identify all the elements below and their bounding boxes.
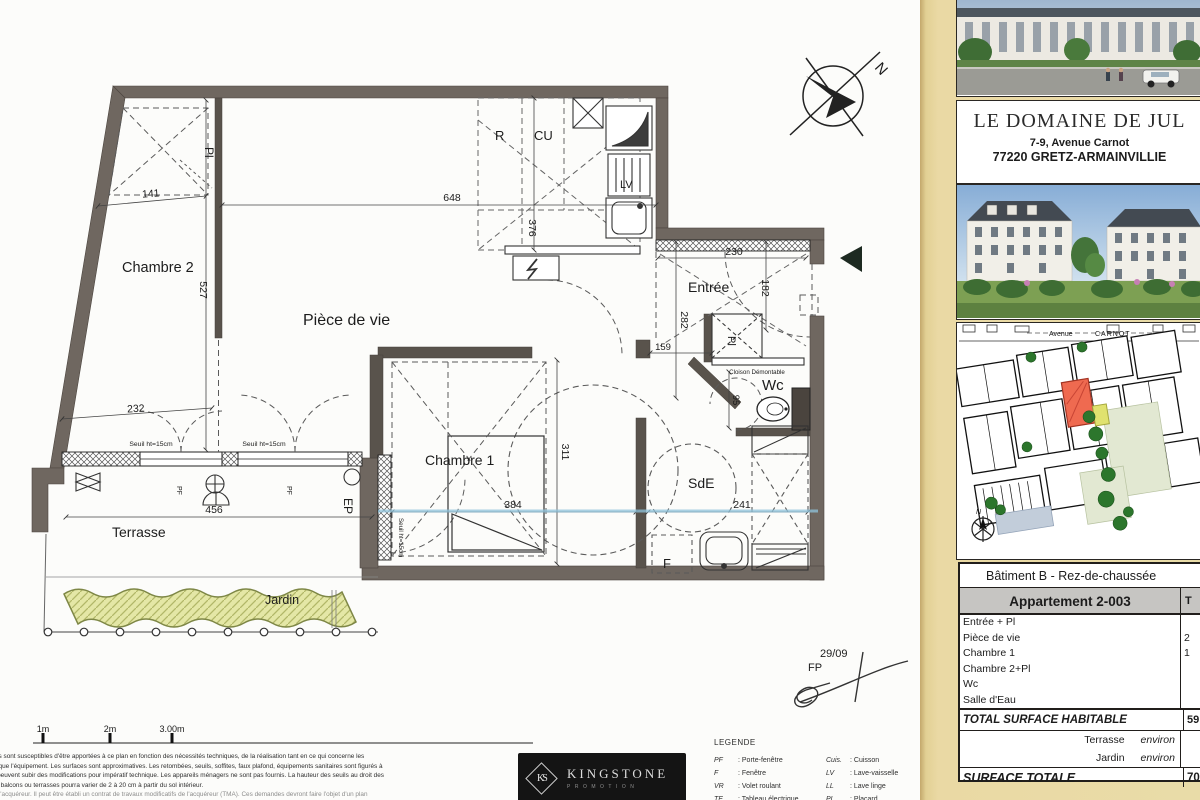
dim-282: 282	[678, 311, 690, 329]
project-title-block: LE DOMAINE DE JUL 7-9, Avenue Carnot 772…	[956, 100, 1200, 184]
project-address-line1: 7-9, Avenue Carnot	[957, 137, 1200, 149]
legend-abbr: VR	[714, 783, 738, 790]
legend-abbr: LV	[826, 770, 850, 777]
toilet	[757, 388, 810, 430]
room-label-piece-de-vie: Pièce de vie	[303, 312, 390, 329]
table-row-value: 2	[1181, 631, 1200, 647]
closet-label-pl-top: Pl	[202, 147, 216, 158]
table-building-header: Bâtiment B - Rez-de-chaussée	[960, 564, 1200, 588]
street-label-avenue: Avenue	[1049, 331, 1073, 338]
legend-item: F: Fenêtre	[714, 767, 826, 780]
table-jardin-row: Jardin environ	[960, 749, 1200, 767]
table-row-label: Entrée + Pl	[960, 615, 1180, 631]
garden-hedge	[64, 589, 356, 627]
floorplan-document-page: Chambre 2 Pièce de vie Chambre 1 Entrée …	[0, 0, 1200, 800]
chambre2-closet	[109, 108, 212, 195]
disclaimer-text: ions sont susceptibles d'être apportées …	[0, 752, 490, 800]
disclaimer-line: es que l'équipement. Les surfaces sont a…	[0, 762, 490, 772]
legend-item: VR: Volet roulant	[714, 780, 826, 793]
table-row-label: Chambre 2+Pl	[960, 662, 1180, 678]
closet-label-pl-entree: Pl	[725, 336, 737, 346]
ep-label: EP	[341, 498, 355, 514]
table-row-label: Chambre 1	[960, 646, 1180, 662]
dim-311: 311	[559, 444, 571, 461]
valve-symbol	[76, 473, 100, 491]
table-row-value	[1181, 677, 1200, 693]
room-label-chambre1: Chambre 1	[425, 452, 494, 468]
plan-initials: FP	[808, 662, 822, 674]
ep-pipe	[344, 469, 360, 485]
legend-label: : Volet roulant	[738, 783, 781, 790]
pf-label-2: PF	[285, 486, 292, 495]
room-label-wc: Wc	[762, 377, 784, 394]
logo-diamond-icon: KS	[525, 762, 558, 795]
dim-95: 95	[730, 395, 741, 406]
legend-label: : Porte-fenêtre	[738, 757, 783, 764]
building-photo-garden	[956, 184, 1200, 320]
room-label-entree: Entrée	[688, 279, 729, 295]
turning-circle	[508, 385, 678, 555]
signature	[795, 652, 908, 707]
surface-column-header: T	[1180, 588, 1200, 613]
table-row-label: Salle d'Eau	[960, 693, 1180, 709]
disclaimer-line: ions sont susceptibles d'être apportées …	[0, 752, 490, 762]
total-label: TOTAL SURFACE HABITABLE	[960, 710, 1183, 730]
table-row-value	[1181, 693, 1200, 709]
legend-abbr: F	[714, 770, 738, 777]
dim-159: 159	[655, 342, 671, 353]
legend-label: : Fenêtre	[738, 770, 766, 777]
window-label-f: F	[663, 556, 671, 571]
dim-527: 527	[197, 281, 209, 299]
dim-241: 241	[733, 499, 751, 511]
legend-label: : Cuisson	[850, 757, 879, 764]
legend: LEGENDE PF: Porte-fenêtre F: Fenêtre VR:…	[714, 738, 954, 800]
door-swings	[140, 252, 818, 553]
scale-2m: 2m	[104, 724, 117, 734]
logo-monogram: KS	[537, 772, 546, 783]
table-apartment-header: Appartement 2-003 T	[960, 588, 1200, 615]
annotation-labels: Pl Pl R CU LV F EP PF PF Cloison Démonta…	[129, 59, 891, 674]
legend-label: : Lave linge	[850, 783, 886, 790]
table-terrasse-row: Terrasse environ	[960, 731, 1200, 749]
annex-qualifier: environ	[1141, 749, 1175, 767]
pf-label-1: PF	[175, 486, 182, 495]
apartment-number: Appartement 2-003	[960, 588, 1180, 613]
table-total-row: TOTAL SURFACE HABITABLE 59	[960, 710, 1200, 731]
table-row-label: Pièce de vie	[960, 631, 1180, 647]
disclaimer-line: et peuvent subir des modifications pour …	[0, 771, 490, 781]
project-title: LE DOMAINE DE JUL	[957, 110, 1200, 133]
dim-230: 230	[725, 246, 743, 258]
total-value: 59	[1183, 710, 1200, 730]
seuil-label-3: Seuil ht=15cm	[397, 518, 404, 557]
legend-abbr: PF	[714, 757, 738, 764]
north-compass	[790, 52, 880, 136]
legend-abbr: Cuis.	[826, 757, 850, 764]
dimension-lines	[62, 98, 808, 564]
outdoor-tap-symbol	[203, 475, 229, 505]
annex-label: Terrasse	[1084, 731, 1124, 749]
disclaimer-line: de l'acquéreur. Il peut être établi un c…	[0, 790, 490, 800]
floorplan-drawing: Chambre 2 Pièce de vie Chambre 1 Entrée …	[0, 0, 940, 745]
legend-abbr: PL	[826, 796, 850, 800]
scale-bar: 1m 2m 3.00m	[18, 724, 558, 748]
legend-title: LEGENDE	[714, 738, 954, 747]
legend-abbr: LL	[826, 783, 850, 790]
dim-648: 648	[443, 192, 461, 204]
dim-384: 384	[504, 499, 522, 511]
table-row-label: Wc	[960, 677, 1180, 693]
annex-label: Jardin	[1096, 749, 1125, 767]
dim-376: 376	[526, 219, 538, 237]
legend-item: PF: Porte-fenêtre	[714, 754, 826, 767]
room-label-terrasse: Terrasse	[112, 524, 166, 540]
kitchen-label-cu: CU	[534, 128, 553, 143]
kitchen-label-lv: LV	[620, 179, 633, 191]
room-label-jardin: Jardin	[265, 593, 299, 607]
grand-total-value: 70	[1183, 768, 1200, 787]
logo-subtitle: PROMOTION	[567, 784, 668, 790]
surface-table: Bâtiment B - Rez-de-chaussée Appartement…	[958, 562, 1200, 782]
disclaimer-line: sur balcons ou terrasses pourra varier d…	[0, 781, 490, 791]
kitchen-label-r: R	[495, 128, 504, 143]
entrance-arrow	[840, 246, 862, 272]
table-row-value	[1181, 615, 1200, 631]
table-row-value: 1	[1181, 646, 1200, 662]
project-address-line2: 77220 GRETZ-ARMAINVILLIE	[957, 150, 1200, 164]
grand-total-label: SURFACE TOTALE	[960, 768, 1183, 787]
annex-qualifier: environ	[1141, 731, 1175, 749]
site-plan: Avenue CARNOT	[956, 322, 1200, 560]
cloison-label: Cloison Démontable	[729, 369, 785, 376]
seuil-label-1: Seuil ht=15cm	[129, 441, 173, 448]
building-photo-street	[956, 0, 1200, 97]
dim-141: 141	[142, 187, 160, 200]
kingstone-logo: KS KINGSTONE PROMOTION	[518, 753, 686, 800]
legend-label: : Tableau électrique	[738, 796, 799, 800]
legend-item: TE: Tableau électrique	[714, 793, 826, 800]
logo-name: KINGSTONE	[567, 766, 668, 782]
terrace-garden	[44, 469, 378, 636]
seuil-label-2: Seuil ht=15cm	[242, 441, 286, 448]
table-row-value	[1181, 662, 1200, 678]
plan-date: 29/09	[820, 648, 848, 660]
room-label-chambre2: Chambre 2	[122, 260, 194, 276]
dim-456: 456	[205, 504, 223, 516]
legend-label: : Lave-vaisselle	[850, 770, 898, 777]
entree-zone	[660, 254, 806, 346]
legend-abbr: TE	[714, 796, 738, 800]
table-grand-total-row: SURFACE TOTALE 70	[960, 767, 1200, 787]
dim-182: 182	[759, 279, 771, 297]
legend-label: : Placard	[850, 796, 878, 800]
room-label-sde: SdE	[688, 475, 714, 491]
interior-walls	[215, 98, 810, 568]
dim-232: 232	[127, 403, 145, 416]
scale-3m: 3.00m	[159, 724, 184, 734]
north-label: N	[871, 59, 891, 78]
scale-1m: 1m	[37, 724, 50, 734]
